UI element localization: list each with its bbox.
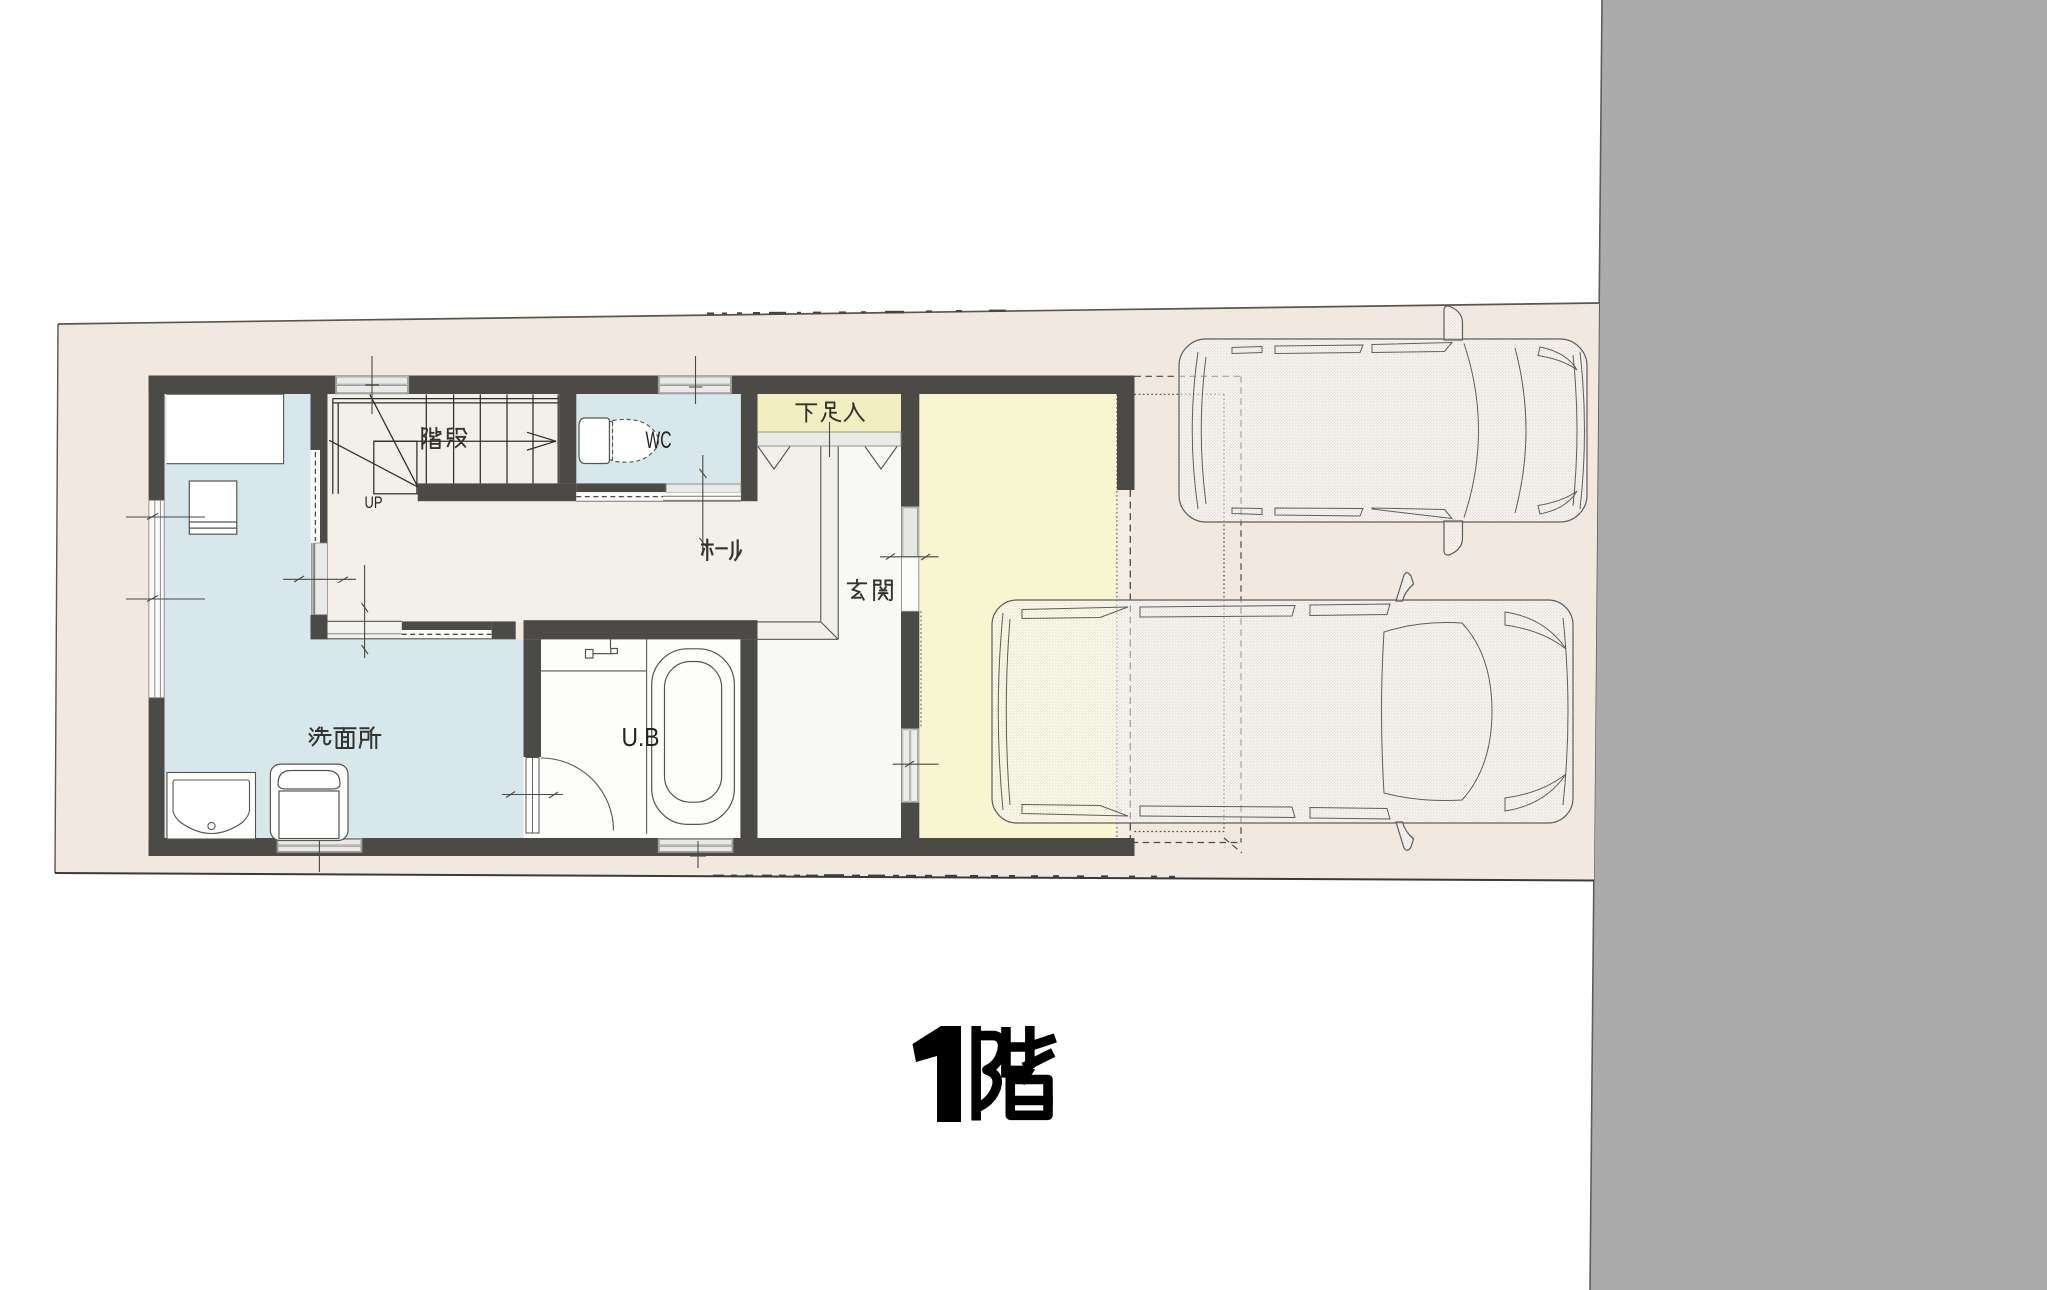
svg-text:UP: UP [365,493,383,512]
svg-text:WC: WC [646,427,672,454]
svg-text:U.B: U.B [622,722,660,752]
